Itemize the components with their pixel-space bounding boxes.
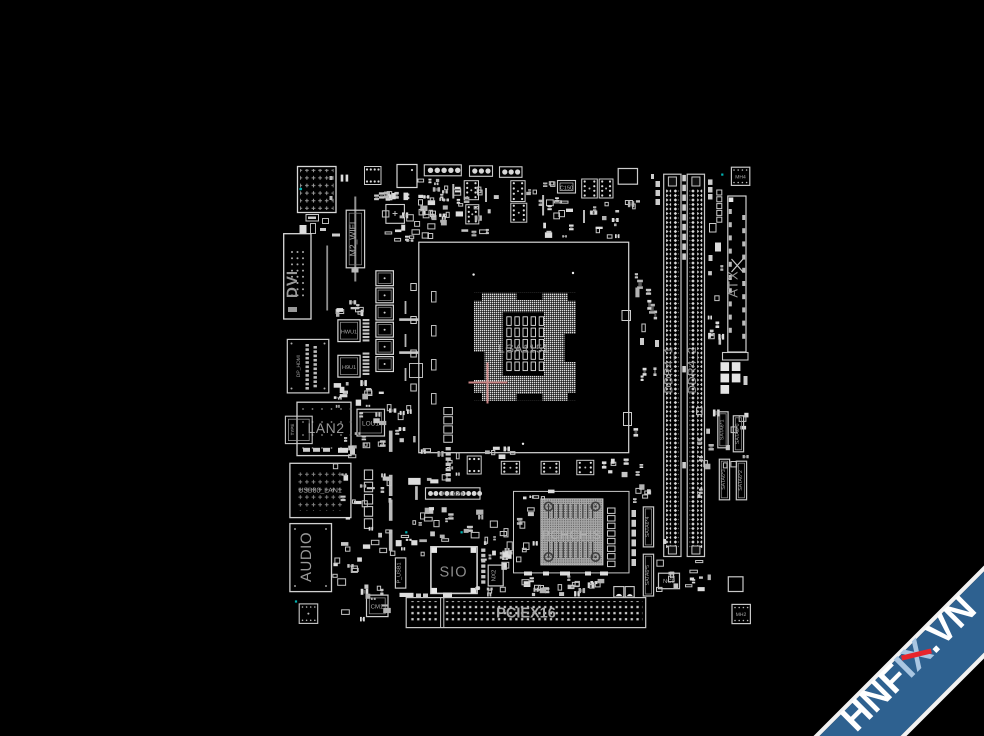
svg-text:SIO: SIO [440, 564, 468, 580]
svg-text:LAN2: LAN2 [307, 420, 344, 436]
svg-text:DVI: DVI [284, 270, 301, 298]
svg-text:P_USB1: P_USB1 [396, 562, 402, 583]
svg-text:MH2: MH2 [736, 612, 747, 618]
svg-text:MH4: MH4 [735, 174, 746, 180]
svg-text:CM1: CM1 [371, 604, 384, 610]
svg-text:AUDIO: AUDIO [298, 532, 315, 582]
svg-text:H9U1: H9U1 [342, 365, 356, 371]
svg-text:SATA6*2: SATA6*2 [738, 470, 744, 491]
svg-text:SATA6*4: SATA6*4 [645, 517, 651, 538]
svg-text:F_L020: F_L020 [441, 491, 464, 498]
svg-text:DDR4_2: DDR4_2 [687, 346, 699, 393]
svg-text:DP_HDMI: DP_HDMI [296, 355, 302, 378]
svg-text:SATA6*3: SATA6*3 [721, 469, 727, 490]
svg-text:SATA6*0: SATA6*0 [735, 423, 741, 444]
svg-text:USB30_LAN1: USB30_LAN1 [298, 487, 342, 494]
svg-text:SATA6*5: SATA6*5 [645, 565, 651, 586]
svg-text:PCIEX16: PCIEX16 [496, 605, 556, 621]
svg-text:HWU1: HWU1 [341, 329, 357, 335]
svg-text:TYPE: TYPE [290, 424, 295, 436]
svg-text:PCHCHIS: PCHCHIS [542, 528, 602, 542]
svg-text:SATA6*1: SATA6*1 [719, 419, 725, 440]
svg-text:C150: C150 [560, 185, 573, 191]
svg-text:M2_WIFI: M2_WIFI [348, 222, 358, 256]
svg-text:DDR4_1: DDR4_1 [663, 346, 675, 393]
svg-text:NX2: NX2 [491, 569, 497, 581]
svg-text:LGA1151: LGA1151 [498, 343, 549, 355]
svg-text:ATX: ATX [725, 270, 740, 297]
